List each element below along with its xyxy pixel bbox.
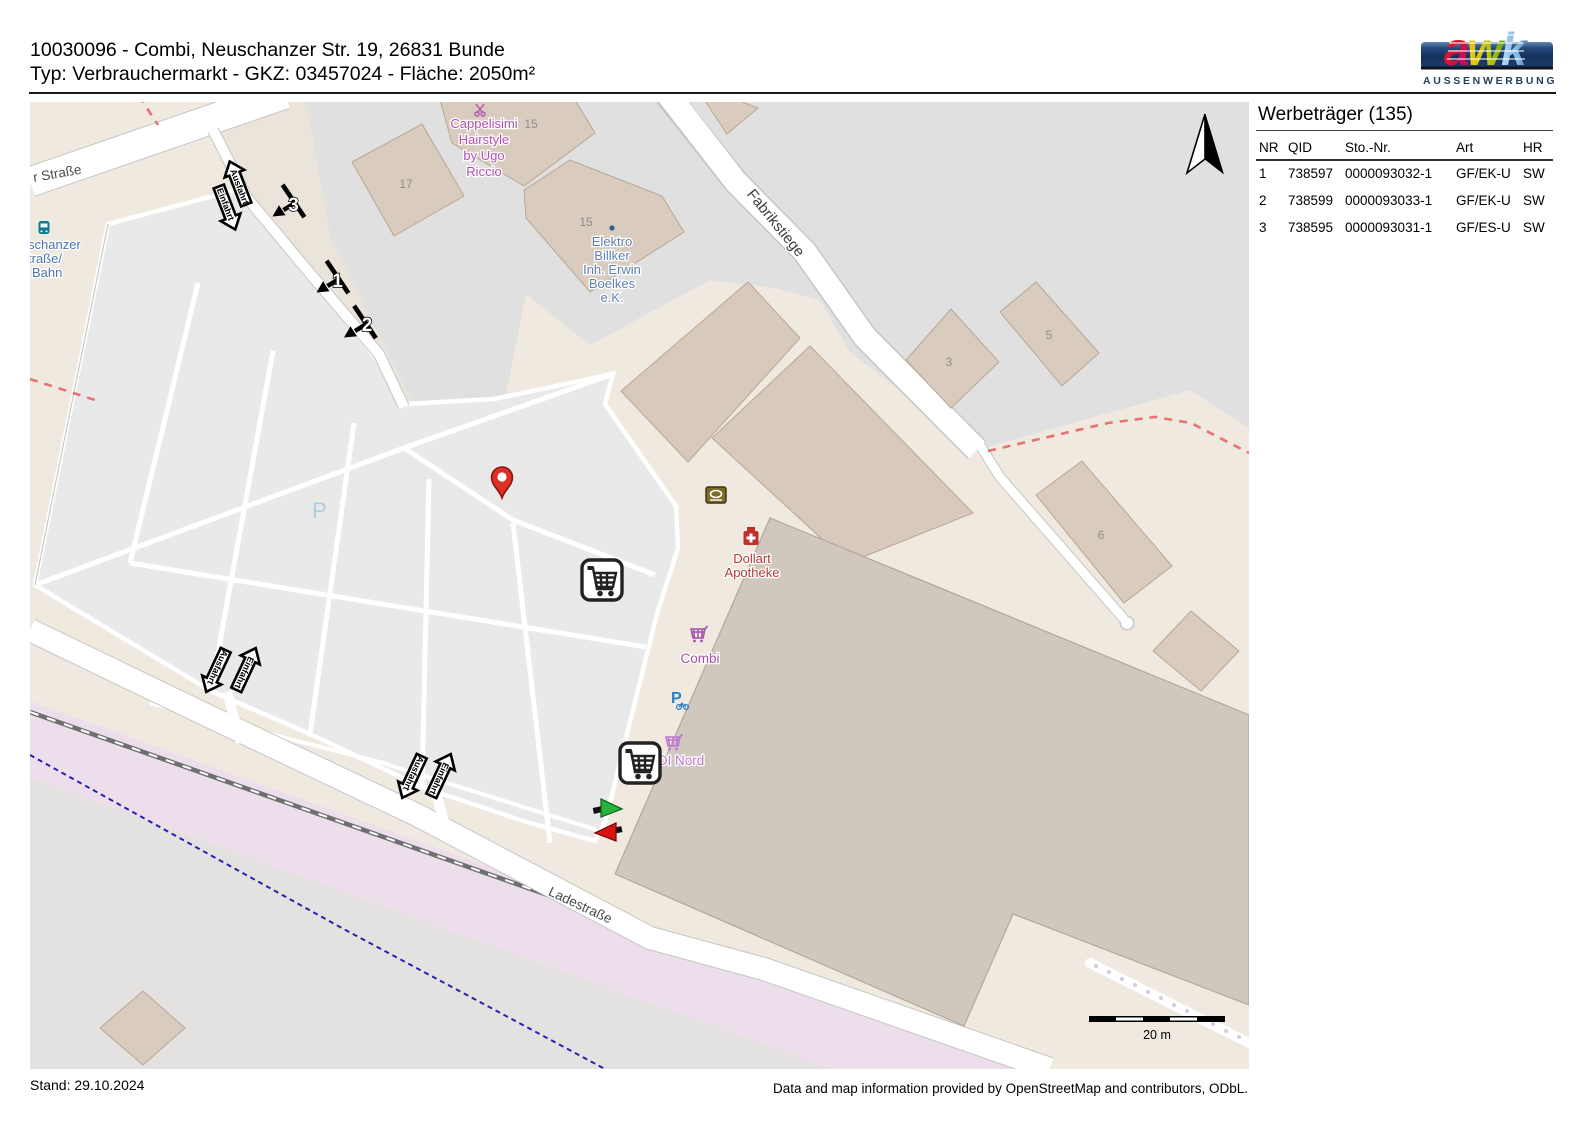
svg-text:3: 3 [946,355,953,369]
svg-text:Hairstyle: Hairstyle [459,132,510,147]
svg-text:Cappelisimi: Cappelisimi [450,116,517,131]
svg-text:traße/: traße/ [30,251,62,266]
svg-text:1: 1 [332,271,343,292]
svg-text:a: a [1444,23,1469,75]
svg-text:15: 15 [524,117,538,131]
svg-text:15: 15 [579,215,593,229]
svg-text:Boelkes: Boelkes [589,276,636,291]
svg-text:Dollart: Dollart [733,551,771,566]
svg-text:AUSSENWERBUNG: AUSSENWERBUNG [1423,75,1557,87]
svg-text:6: 6 [1098,528,1105,542]
svg-text:Bahn: Bahn [32,265,62,280]
svg-text:schanzer: schanzer [30,237,81,252]
svg-text:Riccio: Riccio [466,164,501,179]
svg-text:Elektro: Elektro [592,234,632,249]
svg-text:P: P [312,498,327,523]
svg-text:20 m: 20 m [1143,1028,1171,1042]
svg-text:Billker: Billker [594,248,630,263]
svg-text:by Ugo: by Ugo [463,148,504,163]
svg-text:5: 5 [1046,328,1053,342]
svg-text:3: 3 [288,195,299,216]
svg-text:DI Nord: DI Nord [658,753,705,768]
svg-text:Combi: Combi [680,651,719,666]
svg-text:2: 2 [362,315,373,336]
svg-text:Inh. Erwin: Inh. Erwin [583,262,641,277]
svg-text:Apotheke: Apotheke [725,565,780,580]
svg-text:e.K.: e.K. [600,290,623,305]
svg-text:17: 17 [399,177,413,191]
